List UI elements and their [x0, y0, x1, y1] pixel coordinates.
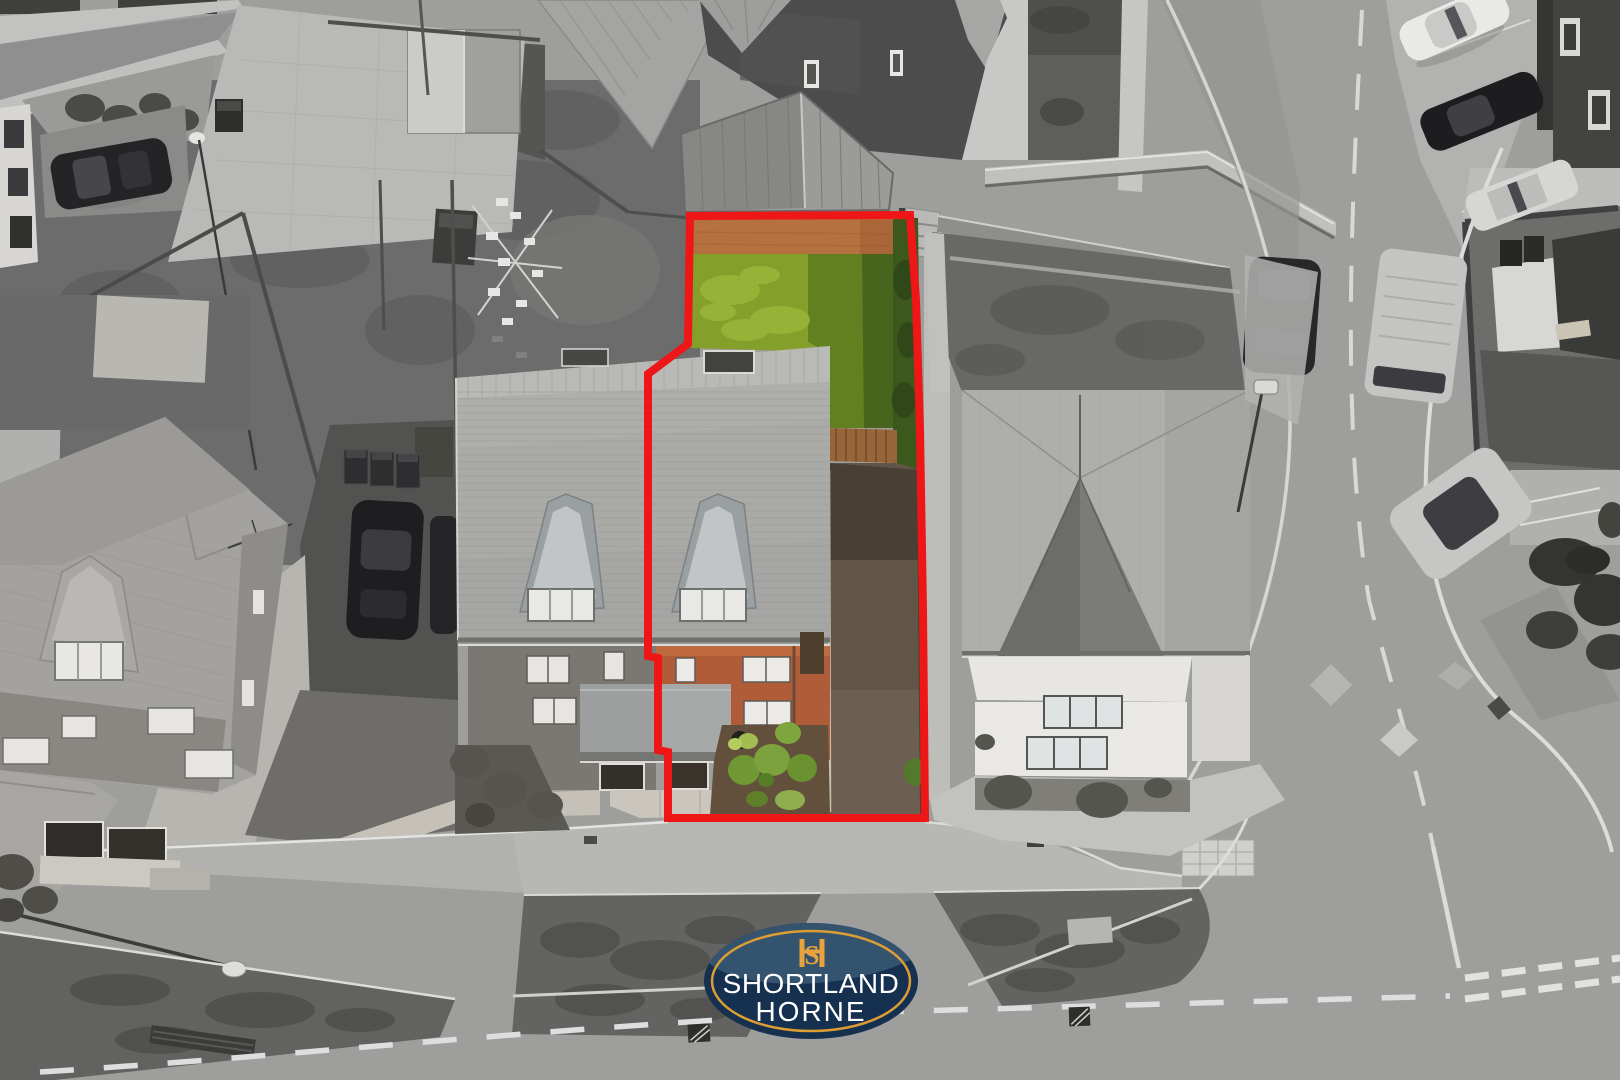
svg-text:S: S [804, 940, 819, 970]
svg-text:SHORTLAND: SHORTLAND [723, 968, 900, 999]
svg-text:HORNE: HORNE [755, 996, 866, 1027]
